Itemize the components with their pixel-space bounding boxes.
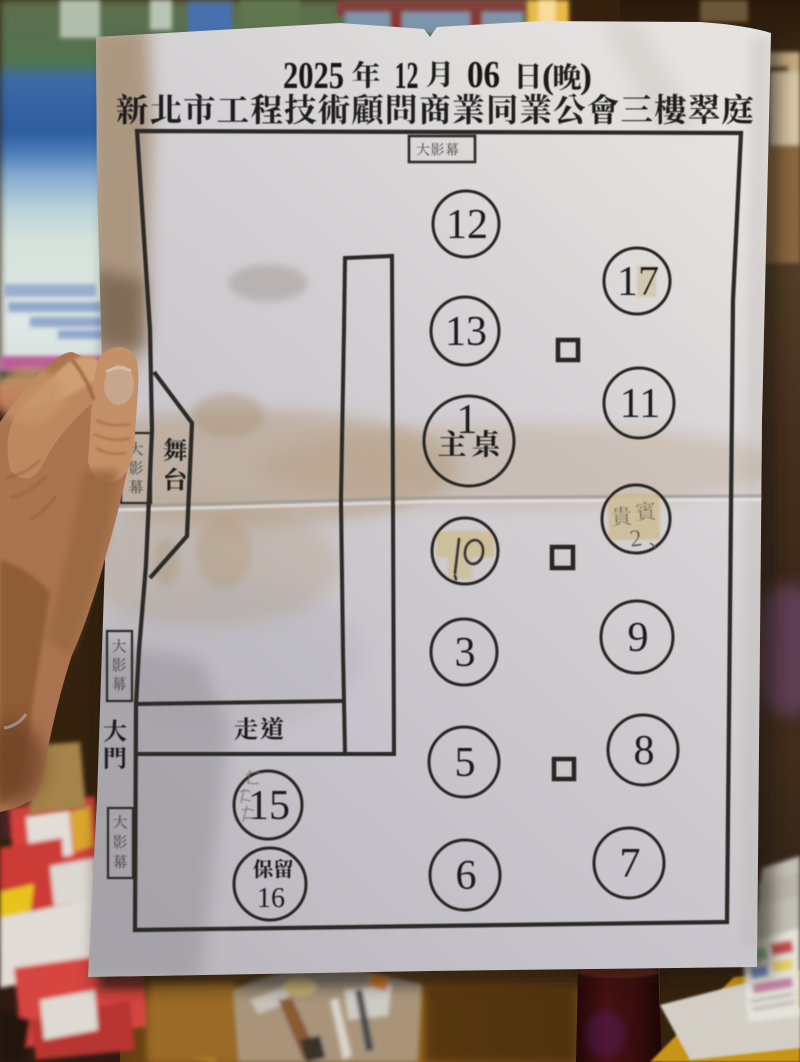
svg-text:11: 11 [620,381,660,427]
svg-text:5: 5 [455,740,476,786]
svg-text:15: 15 [248,783,290,829]
svg-text:8: 8 [634,728,655,774]
svg-text:12: 12 [446,202,488,248]
svg-text:17: 17 [617,259,659,305]
svg-text:2025: 2025 [283,55,344,97]
svg-text:7: 7 [620,841,641,887]
svg-text:(: ( [542,56,554,96]
svg-text:6: 6 [456,853,477,899]
svg-text:): ) [580,56,592,96]
svg-text:3: 3 [455,630,476,676]
svg-text:12: 12 [395,55,419,97]
svg-text:16: 16 [257,883,285,914]
svg-text:13: 13 [445,309,487,355]
svg-text:06: 06 [467,54,500,96]
svg-text:9: 9 [628,615,649,661]
